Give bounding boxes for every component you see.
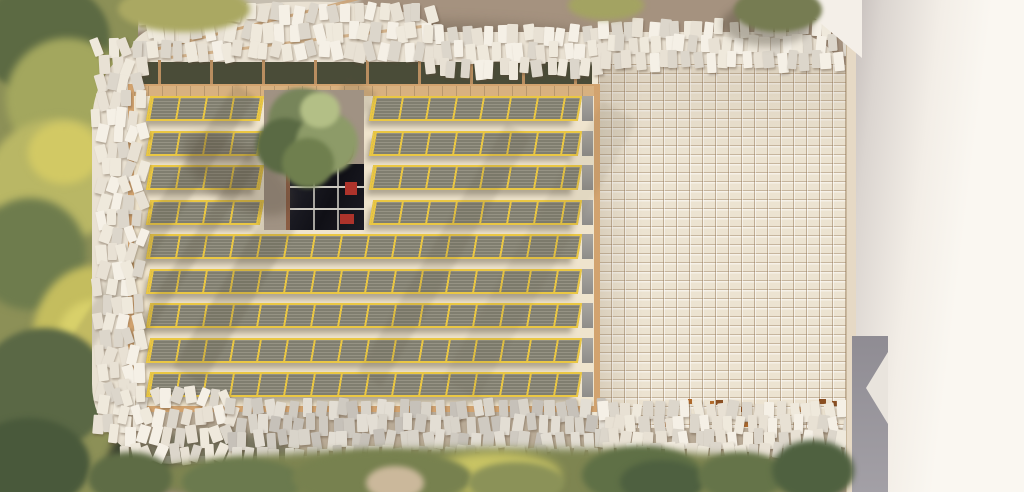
tree-canopy bbox=[88, 452, 172, 492]
tree-canopy bbox=[118, 0, 250, 32]
tree-canopy bbox=[772, 440, 854, 492]
tree-canopy bbox=[568, 0, 644, 20]
tree-canopy bbox=[366, 466, 424, 492]
surrounding-trees bbox=[0, 0, 1024, 492]
aerial-render-scene bbox=[0, 0, 1024, 492]
